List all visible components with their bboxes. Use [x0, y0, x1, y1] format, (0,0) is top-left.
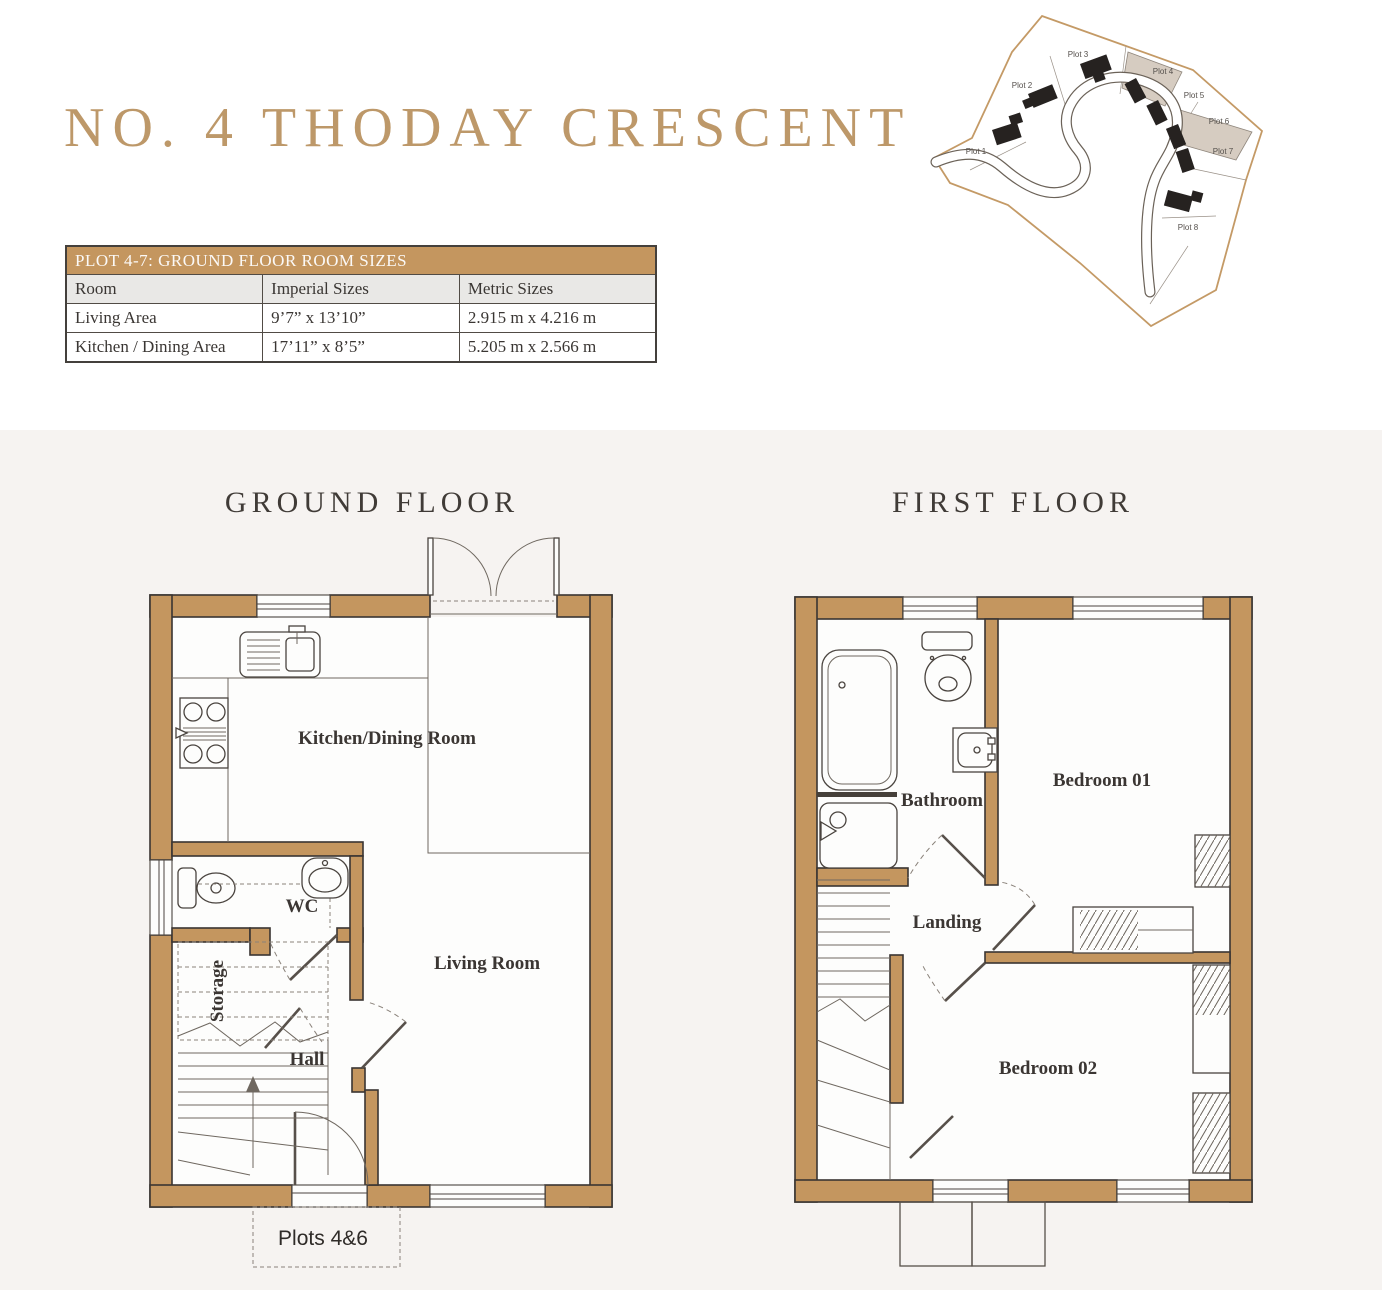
- plot-label: Plot 8: [1178, 223, 1199, 232]
- bath: [822, 650, 897, 790]
- plot-label: Plot 3: [1068, 50, 1089, 59]
- porch-outline: [900, 1202, 1045, 1266]
- first-floor-plan: Bathroom Landing Bedroom 01 Bedroom 02: [780, 480, 1270, 1290]
- wardrobe: [1195, 835, 1230, 887]
- kitchen-sink: [240, 626, 320, 677]
- col-header-imperial: Imperial Sizes: [263, 275, 460, 304]
- plot-label: Plot 2: [1012, 81, 1033, 90]
- cell-imperial: 9’7” x 13’10”: [263, 304, 460, 333]
- wardrobe: [1193, 1093, 1230, 1173]
- toilet: [922, 632, 972, 701]
- cell-metric: 5.205 m x 2.566 m: [459, 333, 656, 363]
- plot-label: Plot 4: [1153, 67, 1174, 76]
- window: [933, 1180, 1008, 1202]
- room-label-storage: Storage: [207, 960, 228, 1022]
- table-title: PLOT 4-7: GROUND FLOOR ROOM SIZES: [66, 246, 656, 275]
- table-row: Kitchen / Dining Area 17’11” x 8’5” 5.20…: [66, 333, 656, 363]
- room-label-bathroom: Bathroom: [901, 790, 983, 811]
- window: [150, 860, 172, 935]
- col-header-room: Room: [66, 275, 263, 304]
- wardrobe: [1193, 965, 1230, 1073]
- room-label-bedroom1: Bedroom 01: [1053, 770, 1151, 791]
- room-label-wc: WC: [286, 896, 319, 917]
- cell-metric: 2.915 m x 4.216 m: [459, 304, 656, 333]
- wardrobe: [1073, 907, 1193, 953]
- plot-label: Plot 6: [1209, 117, 1230, 126]
- room-label-living: Living Room: [434, 953, 540, 974]
- room-label-bedroom2: Bedroom 02: [999, 1058, 1097, 1079]
- plot-note: Plots 4&6: [278, 1227, 368, 1250]
- window: [257, 595, 330, 617]
- french-doors: [428, 538, 559, 614]
- col-header-metric: Metric Sizes: [459, 275, 656, 304]
- plot-label: Plot 7: [1213, 147, 1234, 156]
- wc-basin: [302, 858, 348, 898]
- plot-label: Plot 1: [966, 147, 987, 156]
- site-plan: Plot 1 Plot 2 Plot 3 Plot 4 Plot 5 Plot …: [930, 2, 1382, 337]
- bath-shower-divider: [817, 792, 897, 797]
- vanity-basin: [953, 728, 997, 772]
- cell-room: Living Area: [66, 304, 263, 333]
- cell-room: Kitchen / Dining Area: [66, 333, 263, 363]
- floor-area: [172, 617, 590, 1185]
- window: [1117, 1180, 1189, 1202]
- cell-imperial: 17’11” x 8’5”: [263, 333, 460, 363]
- window: [1073, 597, 1203, 619]
- room-label-landing: Landing: [913, 912, 982, 933]
- room-label-hall: Hall: [290, 1049, 325, 1070]
- ground-floor-plan: Kitchen/Dining Room WC Storage Hall Livi…: [140, 480, 660, 1290]
- window: [430, 1185, 545, 1207]
- page-title: NO. 4 THODAY CRESCENT: [64, 96, 911, 160]
- shower: [820, 803, 897, 868]
- room-label-kitchen: Kitchen/Dining Room: [298, 728, 476, 749]
- hob: [176, 698, 228, 768]
- plot-label: Plot 5: [1184, 91, 1205, 100]
- window: [903, 597, 977, 619]
- table-row: Living Area 9’7” x 13’10” 2.915 m x 4.21…: [66, 304, 656, 333]
- room-size-table: PLOT 4-7: GROUND FLOOR ROOM SIZES Room I…: [65, 245, 657, 363]
